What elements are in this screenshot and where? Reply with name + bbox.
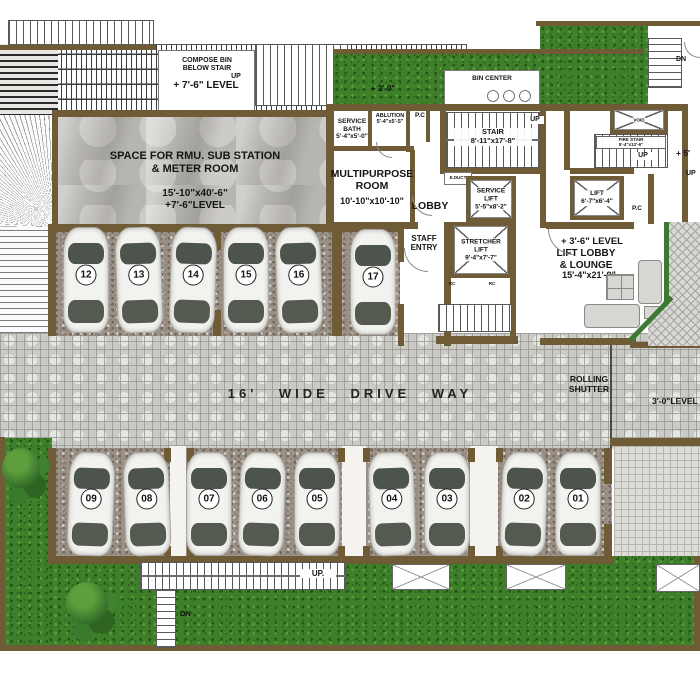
parking-car: 02 [499,451,549,557]
boundary-wall-bottom [0,645,700,651]
wall [52,110,334,117]
pc-right-label: P.C [626,205,648,213]
floor-plan: COMPOSE BIN BELOW STAIR + 7'-6" LEVEL UP… [0,0,700,700]
garden-dn-label: DN [180,610,204,619]
fire-up-label: UP [634,152,652,160]
lounge-table [606,274,634,300]
bin-icon [503,90,515,102]
parking-number: 15 [236,264,257,285]
rc-left-label: RC [446,281,458,286]
parking-car: 14 [168,226,218,334]
parking-number: 05 [307,488,328,509]
parking-number: 14 [182,264,204,286]
parking-car: 13 [114,226,164,334]
planter-box [656,564,700,592]
parking-car: 04 [367,451,417,557]
ablution-label: ABLUTION 5'-4"x5'-5" [372,113,408,126]
lounge-name-label: LIFT LOBBY & LOUNGE [546,248,626,272]
walkway-strip [470,446,498,560]
rolling-shutter-label: ROLLING SHUTTER [558,374,620,394]
void-box: VOID [610,106,668,134]
compose-level-label: + 7'-6" LEVEL [158,80,254,92]
lift-box: LIFT 6'-7"x6'-4" [570,176,624,220]
service-bath-label: SERVICE BATH 5'-4"x5'-0" [331,118,373,141]
parking-number: 03 [437,488,458,509]
walkway-strip [342,446,366,560]
lift-label: LIFT 6'-7"x6'-4" [580,190,614,206]
garden-path-dn [156,590,176,648]
wall [0,45,156,50]
parking-car: 07 [186,452,232,556]
ramp-fan [0,115,54,227]
parking-number: 17 [363,266,384,287]
lounge-sofa-horizontal [584,304,640,328]
parking-number: 04 [381,488,403,510]
dn-top-right-label: DN [670,56,692,64]
parking-car: 05 [294,452,340,556]
wall [546,222,634,229]
parking-stub [604,524,612,560]
service-lift-label: SERVICE LIFT 5'-5"x8'-2" [474,187,508,210]
planter-box [392,564,450,590]
planter-box [506,564,566,590]
level-2-0-label: + 2'-0" [360,84,406,93]
multipurpose-dim-label: 10'-10"x10'-10" [330,196,414,207]
plus-5-label: + 5' [676,148,700,158]
parking-car: 03 [424,452,470,556]
service-lift-box: SERVICE LIFT 5'-5"x8'-2" [466,176,516,222]
void-label: VOID [632,117,645,122]
parking-wall [48,448,56,560]
level-3-0-label: 3'-0"LEVEL [652,396,700,406]
main-stair-label: STAIR 8'-11"x17'-8" [454,128,532,146]
glass-wall [664,222,669,302]
parking-car: 01 [555,452,601,556]
driveway-label: 16' WIDE DRIVE WAY [175,386,525,401]
wall [330,146,414,151]
wall [436,336,518,344]
bin-center-label: BIN CENTER [446,75,538,83]
wall [52,110,58,230]
parking-number: 16 [288,264,310,286]
parking-number: 06 [251,488,273,510]
parking-car: 15 [223,227,269,333]
parking-number: 07 [199,488,220,509]
parking-number: 08 [136,488,158,510]
wall [564,110,570,170]
tree-bush [66,582,108,624]
parking-stub [468,448,475,462]
parking-car: 12 [63,227,109,333]
parking-car: 06 [237,451,287,557]
stretcher-lift-label: STRETCHER LIFT 9'-4"x7'-7" [460,238,502,261]
parking-stub [338,448,345,462]
lounge-sofa-vertical [638,260,662,304]
parking-number: 01 [568,488,589,509]
parking-stub [604,448,612,484]
parking-wall [48,224,56,336]
wall [570,168,634,174]
wall [536,21,700,26]
parking-wall [332,224,342,336]
rmu-name-label: SPACE FOR RMU. SUB STATION & METER ROOM [70,150,320,176]
grass-top-right [540,26,648,108]
stair-up-label: UP [526,116,544,124]
parking-number: 09 [80,488,102,510]
top-left-stair [8,20,154,45]
garden-up-label: UP. [300,569,336,578]
paved-area-bottom-right [614,446,700,560]
walkway-strip [170,446,186,560]
stretcher-lift-box: STRETCHER LIFT 9'-4"x7'-7" [450,222,512,278]
bin-icon [519,90,531,102]
wall [334,49,644,54]
wall [540,338,636,345]
right-up-label: UP [686,170,700,178]
compose-bin-label: COMPOSE BIN BELOW STAIR [162,57,252,74]
wall [610,438,700,446]
compose-up-label: UP [226,73,246,81]
fire-stair-label: FIRE STAIR 5'-4"x13'-6" [596,136,666,149]
rmu-dim-label: 15'-10"x40'-6" +7'-6"LEVEL [110,188,280,212]
tree-bush [2,448,40,488]
parking-car: 16 [274,226,324,334]
parking-car: 09 [66,451,116,557]
bin-icon [487,90,499,102]
parking-car: 17 [350,229,396,335]
wall [682,104,688,226]
parking-stub [363,448,370,462]
rc-right-label: RC [486,281,498,286]
pc-top-label: P.C [410,112,430,120]
multipurpose-label: MULTIPURPOSE ROOM [330,168,414,193]
wall [648,174,654,224]
parking-car: 08 [122,451,172,557]
parking-stub [496,448,503,462]
parking-number: 13 [128,264,150,286]
parking-number: 02 [513,488,535,510]
wall [398,304,404,346]
wall [426,104,430,142]
paved-corner-block [0,44,58,116]
parking-number: 12 [76,264,97,285]
ramp-lines [0,227,54,333]
staff-stair [438,304,512,332]
